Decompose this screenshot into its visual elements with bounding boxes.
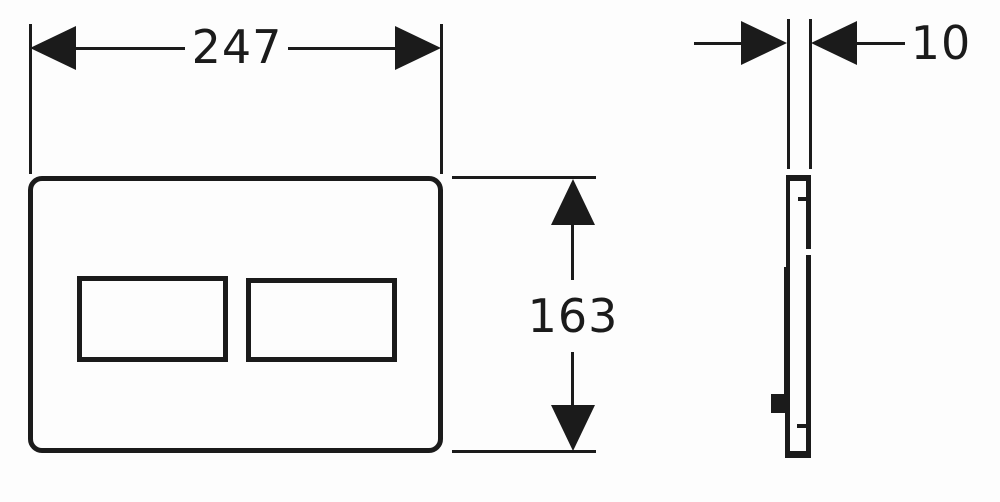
thickness-dimension-value: 10 <box>903 20 979 66</box>
flush-button-left <box>77 276 228 362</box>
profile-step-bottom <box>797 424 806 428</box>
arrowhead-down-icon <box>551 405 595 451</box>
width-dimension-line-left <box>60 47 185 50</box>
profile-notch <box>806 249 811 255</box>
arrowhead-pointing-left-icon <box>811 21 857 65</box>
arrowhead-right-icon <box>395 26 441 70</box>
arrowhead-up-icon <box>551 179 595 225</box>
side-profile <box>762 168 822 468</box>
height-dimension-line-bottom <box>571 352 574 408</box>
arrowhead-left-icon <box>30 26 76 70</box>
flush-button-right <box>246 278 397 362</box>
technical-drawing-canvas: 247 163 10 <box>0 0 1000 502</box>
height-dimension-value: 163 <box>521 293 625 339</box>
thickness-dimension-line-left <box>694 42 744 45</box>
width-dimension-line-right <box>288 47 410 50</box>
arrowhead-pointing-right-icon <box>741 21 787 65</box>
width-dimension-value: 247 <box>185 24 289 70</box>
thickness-extension-line-left <box>787 19 790 169</box>
height-dimension-line-top <box>571 222 574 280</box>
profile-step-top <box>798 197 806 201</box>
thickness-dimension-line-right <box>855 42 905 45</box>
